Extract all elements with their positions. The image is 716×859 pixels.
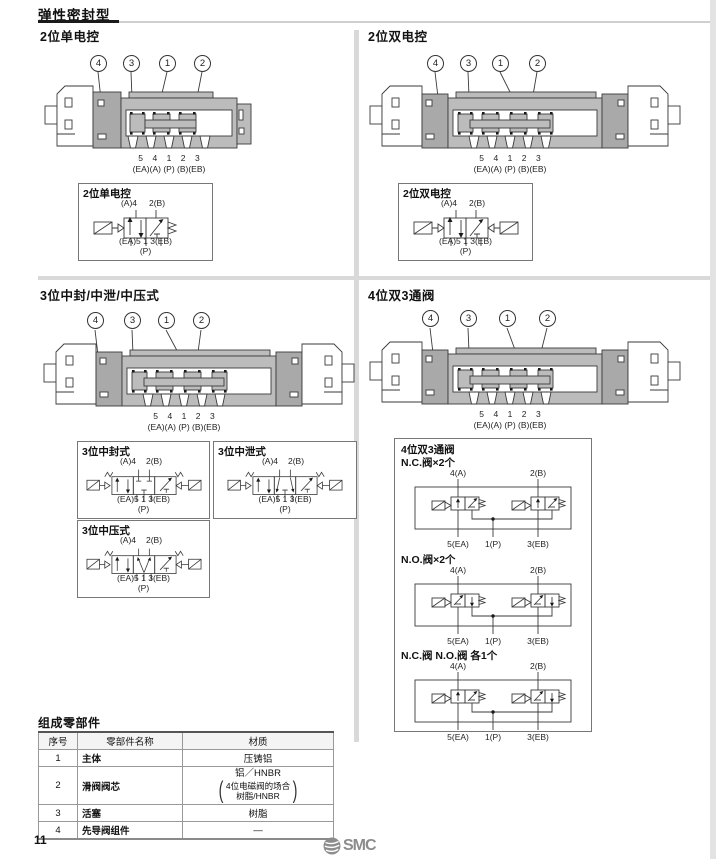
section-subtitle-nc: N.C.阀×2个 [401, 455, 455, 470]
title-rule [119, 21, 710, 24]
label-5ea: 5(EA) [447, 732, 469, 742]
parts-header-row: 序号 零部件名称 材质 [39, 732, 334, 750]
paren-open: ( [218, 779, 223, 803]
part-material: — [183, 822, 334, 840]
col-name: 零部件名称 [78, 732, 183, 750]
label-bottom-ports: (EA)5 1 3(EB) [78, 573, 209, 583]
callout-1: 1 [492, 55, 509, 72]
schematic-box-3pos-closed: 3位中封式 (A)4 2(B) (EA)5 1 3(EB) (P) [77, 441, 210, 519]
quadrant2-title: 2位双电控 [368, 26, 427, 45]
part-no: 3 [39, 805, 78, 822]
label-a4: (A)4 [88, 456, 136, 466]
callout-3: 3 [124, 312, 141, 329]
callout-4: 4 [427, 55, 444, 72]
port-names: (EA)(A) (P) (B)(EB) [474, 164, 547, 175]
callout-1: 1 [499, 310, 516, 327]
callout-3: 3 [123, 55, 140, 72]
horizontal-divider [38, 276, 710, 280]
paren-close: ) [293, 779, 298, 803]
catalog-page: 弹性密封型 2位单电控 4 3 1 2 5 4 1 2 3 (EA)(A) (P… [0, 0, 716, 859]
port-names: (EA)(A) (P) (B)(EB) [133, 164, 206, 175]
label-2b: 2(B) [469, 198, 485, 208]
part-no: 1 [39, 750, 78, 767]
label-1p: 1(P) [485, 636, 501, 646]
label-a4: (A)4 [230, 456, 278, 466]
schematic-box-2pos-double: 2位双电控 (A)4 2(B) (EA)5 1 3(EB) (P) [398, 183, 533, 261]
label-a4: (A)4 [91, 198, 137, 208]
circuit-mixed-pair [410, 672, 576, 730]
callout-4: 4 [87, 312, 104, 329]
port-numbers: 5 4 1 2 3 [479, 153, 540, 164]
label-2b: 2(B) [530, 661, 546, 671]
title-underline [38, 20, 119, 23]
col-no: 序号 [39, 732, 78, 750]
smc-logo-icon [322, 836, 342, 856]
schematic-box-2pos-single: 2位单电控 (A)4 2(B) (EA)5 1 3(EB) (P) [78, 183, 213, 261]
part-name: 主体 [78, 750, 183, 767]
label-3eb: 3(EB) [527, 636, 549, 646]
material-main: 铝／HNBR [235, 768, 281, 779]
callout-4: 4 [422, 310, 439, 327]
part-no: 2 [39, 767, 78, 805]
label-1p: 1(P) [485, 732, 501, 742]
label-bottom-ports: (EA)5 1 3(EB) [399, 236, 532, 246]
part-name: 滑阀阀芯 [78, 767, 183, 805]
port-names: (EA)(A) (P) (B)(EB) [148, 422, 221, 433]
label-2b: 2(B) [149, 198, 165, 208]
smc-logo-text: SMC [343, 837, 376, 855]
circuit-nc-pair [410, 479, 576, 537]
label-bottom-ports: (EA)5 1 3(EB) [78, 494, 209, 504]
schematic-box-3pos-pressure: 3位中压式 (A)4 2(B) (EA)5 1 3(EB) (P) [77, 520, 210, 598]
material-note2: 树脂/HNBR [226, 791, 290, 801]
smc-logo: SMC [322, 836, 376, 856]
material-note1: 4位电磁阀的场合 [226, 781, 290, 791]
part-name: 先导阀组件 [78, 822, 183, 840]
part-material: 压铸铝 [183, 750, 334, 767]
label-2b: 2(B) [530, 468, 546, 478]
port-names: (EA)(A) (P) (B)(EB) [474, 420, 547, 431]
label-4a: 4(A) [450, 661, 466, 671]
label-p: (P) [79, 246, 212, 256]
port-numbers: 5 4 1 2 3 [479, 409, 540, 420]
label-2b: 2(B) [530, 565, 546, 575]
callout-2: 2 [194, 55, 211, 72]
callout-1: 1 [158, 312, 175, 329]
port-numbers: 5 4 1 2 3 [153, 411, 214, 422]
label-4a: 4(A) [450, 468, 466, 478]
label-4a: 4(A) [450, 565, 466, 575]
cross-section-double [370, 328, 690, 408]
label-p: (P) [399, 246, 532, 256]
label-p: (P) [214, 504, 356, 514]
quadrant4-title: 4位双3通阀 [368, 285, 435, 304]
parts-section-title: 组成零部件 [38, 714, 101, 731]
label-3eb: 3(EB) [527, 732, 549, 742]
label-bottom-ports: (EA)5 1 3(EB) [79, 236, 212, 246]
page-number: 11 [34, 833, 47, 847]
callout-1: 1 [159, 55, 176, 72]
col-material: 材质 [183, 732, 334, 750]
callout-3: 3 [460, 55, 477, 72]
label-2b: 2(B) [146, 535, 162, 545]
label-3eb: 3(EB) [527, 539, 549, 549]
label-p: (P) [78, 504, 209, 514]
callout-2: 2 [529, 55, 546, 72]
callout-2: 2 [539, 310, 556, 327]
port-numbers: 5 4 1 2 3 [138, 153, 199, 164]
label-bottom-ports: (EA)5 1 3(EB) [214, 494, 356, 504]
section-subtitle-no: N.O.阀×2个 [401, 552, 456, 567]
part-material: 树脂 [183, 805, 334, 822]
callout-2: 2 [193, 312, 210, 329]
schematic-box-3pos-exhaust: 3位中泄式 (A)4 2(B) (EA)5 1 3(EB) (P) [213, 441, 357, 519]
callout-4: 4 [90, 55, 107, 72]
label-2b: 2(B) [146, 456, 162, 466]
table-row: 1 主体 压铸铝 [39, 750, 334, 767]
label-5ea: 5(EA) [447, 636, 469, 646]
callout-3: 3 [460, 310, 477, 327]
cross-section-single [45, 72, 260, 152]
part-name: 活塞 [78, 805, 183, 822]
page-edge [710, 0, 716, 859]
part-material: 铝／HNBR ( 4位电磁阀的场合 树脂/HNBR ) [183, 767, 334, 805]
parts-table: 序号 零部件名称 材质 1 主体 压铸铝 2 滑阀阀芯 铝／HNBR ( 4位电… [38, 731, 334, 840]
cross-section-double [370, 72, 690, 152]
table-row: 4 先导阀组件 — [39, 822, 334, 840]
quadrant3-title: 3位中封/中泄/中压式 [40, 285, 159, 304]
label-a4: (A)4 [88, 535, 136, 545]
label-1p: 1(P) [485, 539, 501, 549]
table-row: 2 滑阀阀芯 铝／HNBR ( 4位电磁阀的场合 树脂/HNBR ) [39, 767, 334, 805]
label-5ea: 5(EA) [447, 539, 469, 549]
circuit-no-pair [410, 576, 576, 634]
quadrant1-title: 2位单电控 [40, 26, 99, 45]
cross-section-double [44, 330, 364, 410]
schematic-panel-4pos: 4位双3通阀 N.C.阀×2个 4(A) 2(B) 5(EA) 1(P) 3(E… [394, 438, 592, 732]
label-p: (P) [78, 583, 209, 593]
label-2b: 2(B) [288, 456, 304, 466]
label-a4: (A)4 [411, 198, 457, 208]
table-row: 3 活塞 树脂 [39, 805, 334, 822]
